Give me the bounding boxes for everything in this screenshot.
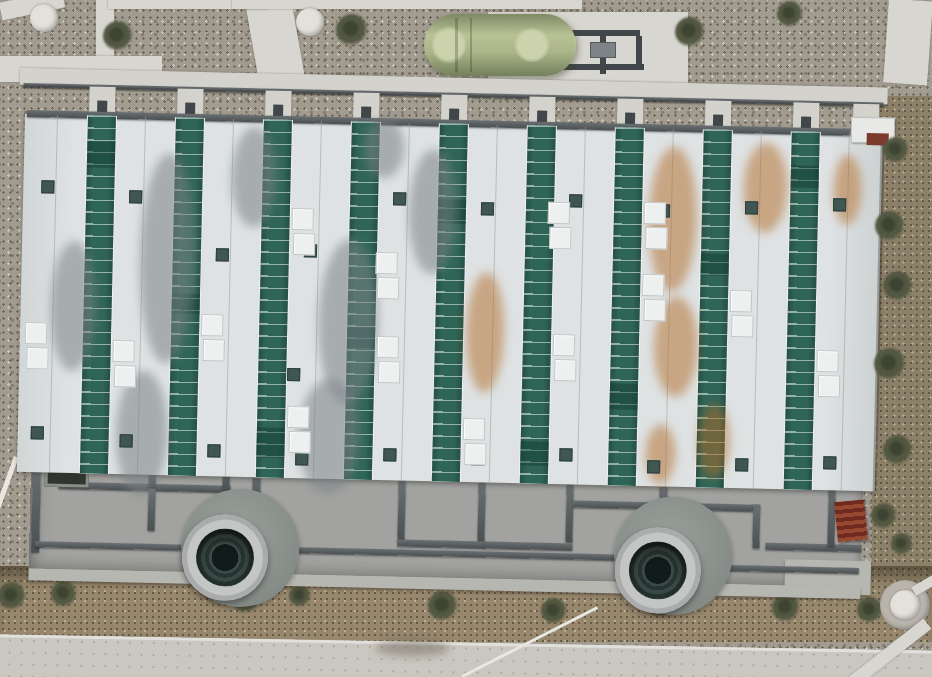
roof-hatch-panel [554,359,576,381]
roof-hatch-panel [288,431,310,453]
roof-vent-square [823,456,836,469]
aerial-photo-treatment-plant [0,0,932,677]
green-stripe-dark-patch [701,253,729,276]
roof-vent-square [216,248,229,261]
roof-hatch-panel [553,334,575,356]
roof-hatch-panel [114,365,136,387]
roof-hatch-panel [377,277,399,299]
roof-vent-square [41,180,54,193]
roof-vent-square [119,434,132,447]
roof-hatch-panel [645,227,667,249]
process-pipe [477,482,485,544]
roof-hatch-panel [26,347,48,369]
roof-vent-square [129,190,142,203]
roof-hatch-panel [730,290,752,312]
roof-hatch-panel [816,350,838,372]
green-stripe-dark-patch [791,165,819,188]
roof-vent-square [207,444,220,457]
roof-vent-square [287,368,300,381]
shrub [875,211,905,241]
shrub [883,271,913,301]
roof-hatch-panel [549,227,571,249]
roof-vent-square [559,448,572,461]
roof-hatch-panel [377,336,399,358]
roof-hatch-panel [112,340,134,362]
roof-hatch-panel [202,339,224,361]
roof-vent-square [383,448,396,461]
shrub [891,533,913,555]
roof-hatch-panel [642,274,664,296]
shrub [874,348,906,380]
roof-hatch-panel [464,443,486,465]
shrub [883,137,909,163]
process-pipe [397,481,405,543]
green-stripe-dark-patch [87,141,116,168]
roof-hatch-panel [375,252,397,274]
roof-hatch-panel [644,202,666,224]
process-pipe [565,484,573,542]
roof-vent-square [393,192,406,205]
shrub [883,435,913,465]
red-stairs [834,499,868,542]
roof-hatch-panel [201,314,223,336]
roof-vent-square [647,460,660,473]
green-stripe-dark-patch [520,441,549,466]
roof-hatch-panel [818,375,840,397]
roof-hatch-panel [378,361,400,383]
roof-vent-square [481,202,494,215]
roof-vent-square [569,194,582,207]
roof-hatch-panel [548,202,570,224]
roof-vent-square [735,458,748,471]
roof-hatch-panel [643,299,665,321]
shrub [871,503,897,529]
roof-hatch-panel [463,418,485,440]
roof-hatch-panel [291,208,313,230]
roof-hatch-panel [287,406,309,428]
process-pipe [752,505,760,549]
green-stripe-dark-patch [256,427,285,458]
plant-building-complex [0,0,932,677]
roof-hatch-panel [25,322,47,344]
roof-vent-square [745,201,758,214]
green-stripe-dark-patch [609,383,638,410]
roof-vent-square [295,452,308,465]
process-pipe [148,489,156,531]
roof-vent-square [31,426,44,439]
roof-vent-square [833,198,846,211]
roof-hatch-panel [293,233,315,255]
roof-hatch-panel [731,315,753,337]
